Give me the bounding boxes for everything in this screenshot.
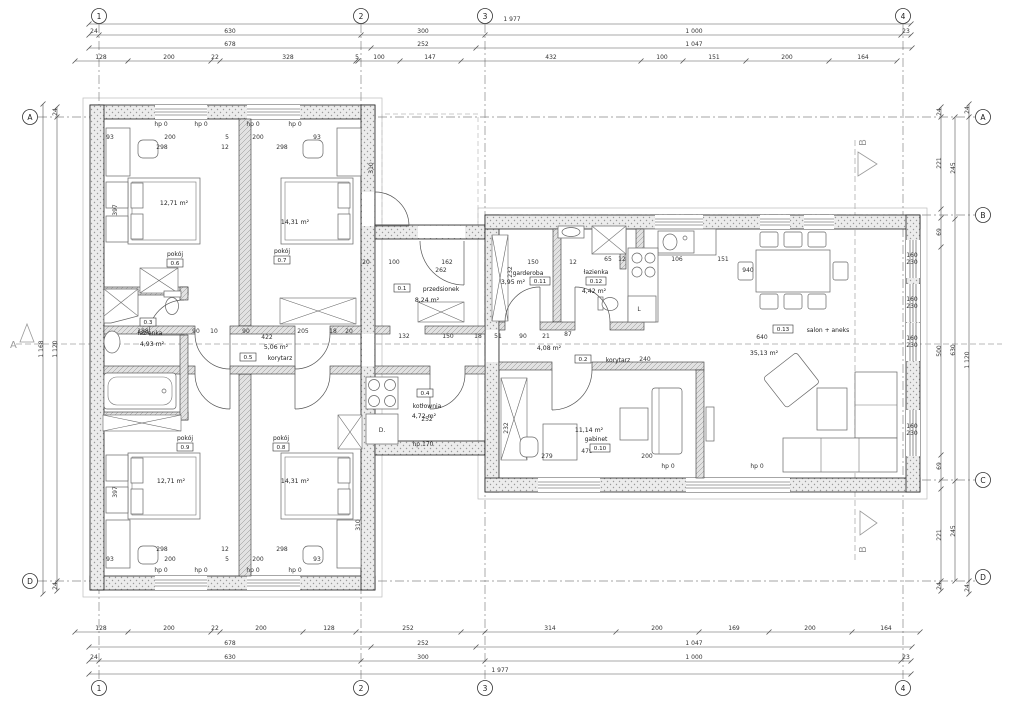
dimension-text: 128 (95, 625, 107, 632)
svg-text:0.2: 0.2 (579, 357, 588, 363)
dimension-text: 69 (936, 228, 943, 236)
dimension-text: hp 0 (288, 567, 302, 574)
svg-text:C: C (980, 476, 985, 485)
svg-text:garderoba: garderoba (513, 270, 544, 277)
axis-col-4-top: 4 (896, 9, 911, 24)
dimension-text: 169 (728, 625, 740, 632)
dimension-text: 12 (618, 256, 626, 263)
dimension-text: 93 (106, 134, 114, 141)
dimension-text: 24 (52, 108, 59, 116)
axis-col-4-bottom: 4 (896, 681, 911, 696)
svg-text:4,72 m²: 4,72 m² (412, 413, 437, 420)
dimension-text: 252 (402, 625, 414, 632)
dimension-text: 51 (494, 333, 502, 340)
dimension-text: 24 (964, 584, 971, 592)
svg-text:kotłownia: kotłownia (413, 403, 442, 410)
dimension-text: 200 (164, 556, 176, 563)
dimension-text: 205 (297, 328, 309, 335)
dimension-text: 397 (112, 486, 119, 498)
dimension-text: hp 0 (288, 121, 302, 128)
dimension-text: 18 (329, 328, 337, 335)
dimension-text: 630 (224, 654, 236, 661)
dimension-text: hp 0 (246, 121, 260, 128)
dimension-text: 1 000 (685, 28, 702, 35)
section-a-label: A (10, 340, 17, 351)
svg-text:5,06 m²: 5,06 m² (264, 344, 289, 351)
dimension-text: 279 (541, 453, 553, 460)
dimension-text: 24 (964, 106, 971, 114)
svg-text:pokój: pokój (273, 435, 289, 442)
dimension-text: 23 (902, 654, 910, 661)
dimension-text: 630 (224, 28, 236, 35)
svg-text:3: 3 (483, 12, 488, 21)
dimension-text: 232 (503, 422, 510, 434)
dimension-text: 1 047 (685, 41, 702, 48)
dimension-text: hp 0 (154, 567, 168, 574)
dimension-text: 93 (106, 556, 114, 563)
svg-text:korytarz: korytarz (268, 355, 293, 362)
svg-text:0.3: 0.3 (144, 320, 153, 326)
svg-text:4: 4 (901, 684, 906, 693)
dimension-text: 298 (156, 144, 168, 151)
svg-text:A: A (980, 113, 986, 122)
dimension-text: 1 168 (38, 340, 45, 357)
dimension-text: 100 (388, 259, 400, 266)
svg-text:A: A (27, 113, 33, 122)
dimension-text: 24 (52, 582, 59, 590)
room-label-lazienka-012: łazienka0.124,42 m² (582, 269, 609, 295)
dimension-text: 200 (164, 134, 176, 141)
axis-col-2-top: 2 (354, 9, 369, 24)
dimension-text: hp 0 (194, 121, 208, 128)
dimension-text: 200 (804, 625, 816, 632)
svg-text:14,31 m²: 14,31 m² (281, 478, 310, 485)
dimension-text: 160 (906, 252, 918, 259)
section-b-arrow-bottom (860, 511, 877, 535)
section-b-label-bottom: B (858, 546, 869, 553)
dimension-text: 200 (252, 556, 264, 563)
dimension-text: 21 (542, 333, 550, 340)
room-label-salon: 0.13salon + aneks35,13 m² (750, 325, 849, 357)
dimension-text: 262 (435, 267, 447, 274)
dimension-text: 678 (224, 41, 236, 48)
dimension-text: hp 0 (194, 567, 208, 574)
dimension-text: 200 (163, 54, 175, 61)
dimension-text: 106 (671, 256, 683, 263)
dimension-text: 328 (282, 54, 294, 61)
salon-seating (706, 352, 897, 472)
dimension-text: 298 (276, 144, 288, 151)
room-label-przedsionek: 0.1przedsionek8,24 m² (394, 284, 460, 304)
dimension-text: 12 (221, 144, 229, 151)
dimension-text: 24 (936, 582, 943, 590)
dimension-text: 640 (756, 334, 768, 341)
dimension-text: 151 (717, 256, 729, 263)
svg-text:3,95 m²: 3,95 m² (501, 279, 526, 286)
svg-text:0.12: 0.12 (590, 279, 602, 285)
roof-outline (83, 98, 927, 597)
dimension-text: 22 (211, 625, 219, 632)
svg-text:4: 4 (901, 12, 906, 21)
svg-text:0.1: 0.1 (398, 286, 407, 292)
svg-text:4,08 m²: 4,08 m² (537, 345, 562, 352)
svg-text:0.13: 0.13 (777, 327, 790, 333)
dimension-text: 87 (564, 331, 572, 338)
axis-col-2-bottom: 2 (354, 681, 369, 696)
axis-col-1-bottom: 1 (92, 681, 107, 696)
svg-text:0.4: 0.4 (421, 391, 430, 397)
dimension-text: 128 (323, 625, 335, 632)
dimension-text: 240 (639, 356, 651, 363)
axis-col-3-bottom: 3 (478, 681, 493, 696)
svg-text:3: 3 (483, 684, 488, 693)
dimension-text: 10 (210, 328, 218, 335)
svg-text:pokój: pokój (177, 435, 193, 442)
dimension-text: 245 (950, 525, 957, 537)
dimension-text: 20 (362, 259, 370, 266)
dimension-text: 164 (857, 54, 869, 61)
dimension-text: 160 (906, 423, 918, 430)
dimension-text: 500 (936, 345, 943, 357)
dimension-text: 630 (950, 344, 957, 356)
dimension-text: 24 (936, 108, 943, 116)
section-a-arrow (20, 324, 34, 342)
wardrobes (103, 235, 527, 460)
bed-room-09 (106, 453, 200, 568)
dimension-text: 300 (417, 28, 429, 35)
dimension-text: 200 (641, 453, 653, 460)
dimension-text: 678 (224, 640, 236, 647)
dimension-text: 164 (880, 625, 892, 632)
svg-text:łazienka: łazienka (584, 269, 609, 276)
dimension-text: 150 (442, 333, 454, 340)
dimension-text: 310 (355, 519, 362, 531)
dimension-text: 1 000 (685, 654, 702, 661)
dimension-text: 23 (902, 28, 910, 35)
dimension-text: 1 120 (964, 351, 971, 368)
svg-text:2: 2 (359, 12, 364, 21)
svg-text:12,71 m²: 12,71 m² (157, 478, 186, 485)
dimension-text: 100 (373, 54, 385, 61)
axis-row-b-right: B (976, 208, 991, 223)
furniture (103, 128, 897, 568)
bed-room-08 (281, 453, 361, 568)
dimension-text: 300 (417, 654, 429, 661)
room-label-gabinet: 11,14 m²gabinet0.10 (575, 427, 610, 452)
dimension-text: 298 (276, 546, 288, 553)
dimension-text: 5 (355, 54, 359, 61)
dimension-text: 20 (345, 328, 353, 335)
dimension-text: hp 0 (661, 463, 675, 470)
dimension-text: 160 (906, 296, 918, 303)
svg-text:8,24 m²: 8,24 m² (415, 297, 440, 304)
room-label-lazienka-03: 0.3łazienka4,93 m² (138, 318, 165, 348)
room-label-kotlownia: 0.4kotłownia4,72 m² (412, 389, 442, 420)
svg-text:pokój: pokój (274, 248, 290, 255)
dimension-text: 252 (417, 640, 429, 647)
svg-text:1: 1 (97, 12, 102, 21)
dimension-text: 422 (261, 334, 273, 341)
svg-text:łazienka: łazienka (138, 330, 163, 337)
svg-text:35,13 m²: 35,13 m² (750, 350, 779, 357)
svg-text:0.11: 0.11 (534, 279, 547, 285)
floor-plan-sheet: 1 977246303001 000236782521 047128200223… (0, 0, 1024, 709)
dimension-text: 252 (417, 41, 429, 48)
dimension-text: 69 (936, 462, 943, 470)
section-b-arrow-top (858, 152, 877, 176)
axis-row-d-left: D (23, 574, 38, 589)
dimension-text: 1 977 (491, 667, 508, 674)
svg-text:0.8: 0.8 (277, 445, 286, 451)
dimension-text: 200 (781, 54, 793, 61)
dimension-text: hp 0 (154, 121, 168, 128)
dimension-text: 24 (90, 654, 98, 661)
svg-text:4,42 m²: 4,42 m² (582, 288, 607, 295)
dimension-text: 298 (156, 546, 168, 553)
floor-plan-drawing: 1 977246303001 000236782521 047128200223… (0, 0, 1024, 709)
bed-room-06 (106, 128, 200, 244)
dining-set (738, 232, 848, 309)
svg-text:B: B (980, 211, 985, 220)
dimension-text: 230 (906, 342, 918, 349)
dimension-text: 128 (95, 54, 107, 61)
svg-text:14,31 m²: 14,31 m² (281, 219, 310, 226)
svg-text:gabinet: gabinet (585, 436, 608, 443)
dimension-text: 132 (398, 333, 410, 340)
dimension-text: 65 (604, 256, 612, 263)
svg-text:salon + aneks: salon + aneks (807, 327, 850, 334)
dimension-text: 200 (163, 625, 175, 632)
dimension-text: hp 0 (750, 463, 764, 470)
axis-col-3-top: 3 (478, 9, 493, 24)
dimension-text: 314 (544, 625, 556, 632)
svg-text:0.10: 0.10 (594, 446, 607, 452)
svg-text:0.7: 0.7 (278, 258, 287, 264)
svg-text:korytarz: korytarz (606, 357, 631, 364)
dimension-text: 12 (221, 546, 229, 553)
svg-text:D: D (27, 577, 33, 586)
svg-text:0.5: 0.5 (244, 355, 253, 361)
axis-row-a-right: A (976, 110, 991, 125)
dimension-text: 432 (545, 54, 557, 61)
dimension-text: 162 (441, 259, 453, 266)
dimension-text: 160 (906, 335, 918, 342)
axis-row-d-right: D (976, 570, 991, 585)
dimension-text: 940 (742, 267, 754, 274)
dimension-text: 90 (519, 333, 527, 340)
dimension-text: 200 (651, 625, 663, 632)
dimension-text: 150 (527, 259, 539, 266)
svg-text:pokój: pokój (167, 251, 183, 258)
dimension-text: 397 (112, 204, 119, 216)
dimension-text: 230 (906, 303, 918, 310)
room-label-korytarz-02: 0.2korytarz4,08 m² (537, 345, 630, 364)
dimension-text: 1 047 (685, 640, 702, 647)
svg-text:11,14 m²: 11,14 m² (575, 427, 604, 434)
dimension-text: 5 (225, 134, 229, 141)
svg-text:12,71 m²: 12,71 m² (160, 200, 189, 207)
dimension-text: D. (379, 427, 386, 434)
dimension-text: 93 (313, 556, 321, 563)
dimension-text: hp 0 (246, 567, 260, 574)
dimension-text: 1 977 (503, 16, 520, 23)
dimension-text: 221 (936, 529, 943, 541)
room-label-korytarz-05: 0.5korytarz5,06 m² (240, 344, 292, 362)
dimension-text: 22 (211, 54, 219, 61)
axis-row-c-right: C (976, 473, 991, 488)
dimension-text: 221 (936, 157, 943, 169)
axis-col-1-top: 1 (92, 9, 107, 24)
svg-text:1: 1 (97, 684, 102, 693)
dimension-text: 147 (424, 54, 436, 61)
dimension-text: 1 120 (52, 340, 59, 357)
dimension-text: 93 (313, 134, 321, 141)
dimension-text: 200 (252, 134, 264, 141)
exterior-walls (90, 105, 920, 590)
svg-text:D: D (980, 573, 986, 582)
dimension-text: 151 (708, 54, 720, 61)
dimension-text: 230 (906, 430, 918, 437)
dimension-text: hp 170 (413, 441, 434, 448)
dimension-text: 24 (90, 28, 98, 35)
dimension-text: 100 (656, 54, 668, 61)
dimension-text: 18 (474, 333, 482, 340)
svg-text:0.9: 0.9 (181, 445, 190, 451)
dimension-text: 5 (225, 556, 229, 563)
axis-row-a-left: A (23, 110, 38, 125)
dimension-text: 245 (950, 162, 957, 174)
dimension-text: 90 (242, 328, 250, 335)
bed-room-07 (281, 128, 361, 244)
svg-text:przedsionek: przedsionek (423, 286, 460, 293)
dimension-text: 200 (255, 625, 267, 632)
dimension-text: 310 (368, 162, 375, 174)
svg-text:2: 2 (359, 684, 364, 693)
dimension-text: 90 (192, 328, 200, 335)
svg-text:4,93 m²: 4,93 m² (140, 341, 165, 348)
dimension-text: 12 (569, 259, 577, 266)
bathroom-03 (104, 289, 181, 409)
dimension-text: 230 (906, 259, 918, 266)
section-b-label-top: B (858, 139, 869, 146)
svg-text:0.6: 0.6 (171, 261, 180, 267)
